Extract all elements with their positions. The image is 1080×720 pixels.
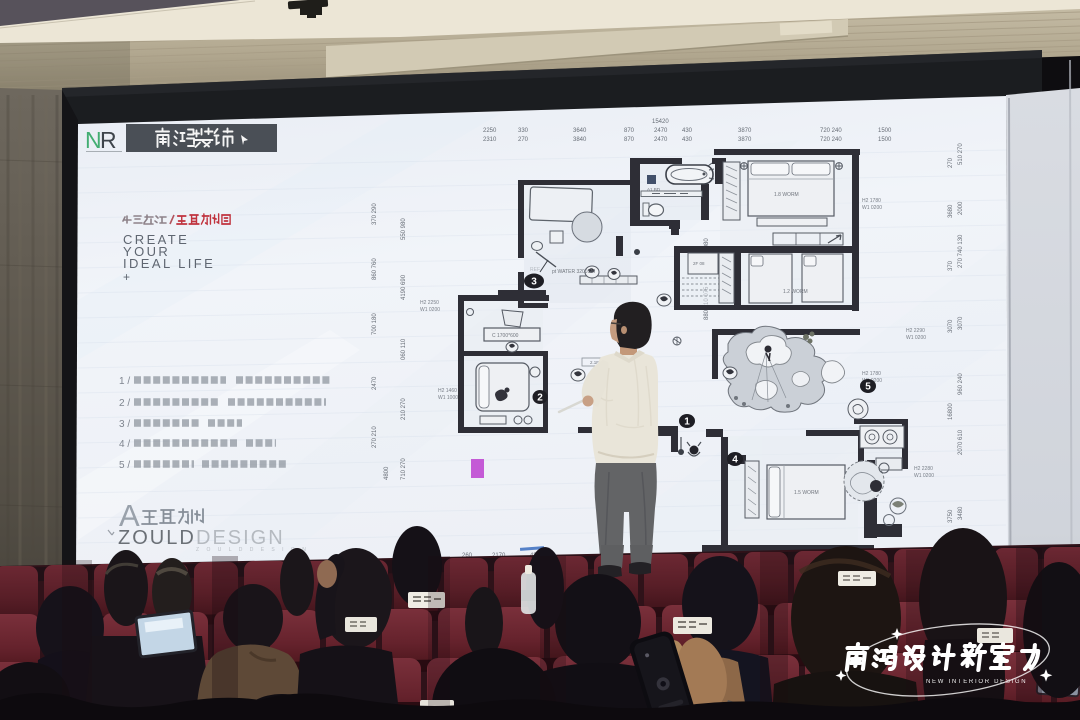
svg-text:3640: 3640 bbox=[573, 128, 587, 134]
svg-text:270: 270 bbox=[518, 137, 529, 143]
svg-text:060 110: 060 110 bbox=[401, 338, 407, 360]
svg-text:1.8 WORM: 1.8 WORM bbox=[774, 192, 799, 198]
svg-text:W1 1000: W1 1000 bbox=[438, 395, 458, 401]
svg-text:370 290: 370 290 bbox=[372, 203, 378, 225]
svg-text:IDEAL LIFE: IDEAL LIFE bbox=[123, 256, 215, 271]
svg-text:H2 1780: H2 1780 bbox=[862, 198, 881, 204]
svg-text:3870: 3870 bbox=[738, 128, 752, 134]
svg-text:2310: 2310 bbox=[483, 137, 497, 143]
svg-text:DESIGN: DESIGN bbox=[196, 527, 285, 549]
svg-text:1500: 1500 bbox=[878, 137, 892, 143]
svg-text:H2 2290: H2 2290 bbox=[906, 328, 925, 334]
svg-text:2250: 2250 bbox=[483, 128, 497, 134]
svg-text:2470: 2470 bbox=[654, 128, 668, 134]
svg-text:2470: 2470 bbox=[654, 137, 668, 143]
svg-text:ZOULD: ZOULD bbox=[118, 527, 196, 549]
svg-text:C 1700*600: C 1700*600 bbox=[492, 333, 519, 339]
svg-text:4: 4 bbox=[732, 455, 738, 466]
svg-text:960 240: 960 240 bbox=[958, 373, 964, 395]
svg-text:W1 0200: W1 0200 bbox=[914, 473, 934, 479]
svg-text:1 /: 1 / bbox=[119, 376, 130, 387]
svg-text:16800: 16800 bbox=[948, 403, 954, 420]
svg-text:1.5 WORM: 1.5 WORM bbox=[794, 490, 819, 496]
svg-text:2470: 2470 bbox=[372, 376, 378, 390]
svg-text:5 /: 5 / bbox=[119, 460, 130, 471]
svg-text:W1 0200: W1 0200 bbox=[862, 205, 882, 211]
svg-text:H2 1460: H2 1460 bbox=[438, 388, 457, 394]
svg-text:W1 0200: W1 0200 bbox=[906, 335, 926, 341]
svg-text:4 /: 4 / bbox=[119, 439, 130, 450]
svg-text:2: 2 bbox=[537, 393, 543, 404]
svg-text:430: 430 bbox=[682, 128, 693, 134]
svg-text:370: 370 bbox=[948, 260, 954, 271]
svg-text:550 980: 550 980 bbox=[401, 218, 407, 240]
svg-text:pt WATER 3200SM: pt WATER 3200SM bbox=[552, 269, 595, 275]
svg-text:15420: 15420 bbox=[652, 119, 669, 125]
svg-text:700 180: 700 180 bbox=[372, 313, 378, 335]
svg-text:1: 1 bbox=[684, 417, 690, 428]
svg-text:+: + bbox=[123, 270, 130, 284]
svg-text:3070: 3070 bbox=[948, 319, 954, 333]
svg-text:3: 3 bbox=[531, 277, 537, 288]
svg-text:270: 270 bbox=[948, 157, 954, 168]
svg-text:210 270: 210 270 bbox=[401, 398, 407, 420]
svg-text:4800: 4800 bbox=[384, 466, 390, 480]
svg-text:2 /: 2 / bbox=[119, 398, 130, 409]
svg-text:3840: 3840 bbox=[573, 137, 587, 143]
svg-text:W1 0200: W1 0200 bbox=[420, 307, 440, 313]
svg-text:2F 08: 2F 08 bbox=[693, 261, 705, 266]
svg-text:4190 690: 4190 690 bbox=[401, 274, 407, 300]
svg-text:270 740 130: 270 740 130 bbox=[958, 234, 964, 268]
svg-text:870: 870 bbox=[624, 128, 635, 134]
svg-text:3680: 3680 bbox=[948, 204, 954, 218]
svg-text:3480: 3480 bbox=[958, 506, 964, 520]
svg-text:NEW INTERIOR DESIGN: NEW INTERIOR DESIGN bbox=[926, 679, 1027, 685]
svg-text:H2 1780: H2 1780 bbox=[862, 371, 881, 377]
svg-text:860 760: 860 760 bbox=[372, 258, 378, 280]
svg-text:3 /: 3 / bbox=[119, 419, 130, 430]
svg-text:870: 870 bbox=[624, 137, 635, 143]
svg-text:H2 2250: H2 2250 bbox=[420, 300, 439, 306]
svg-text:270 210: 270 210 bbox=[372, 426, 378, 448]
svg-text:510 270: 510 270 bbox=[958, 143, 964, 165]
svg-text:710 270: 710 270 bbox=[401, 458, 407, 480]
svg-text:430: 430 bbox=[682, 137, 693, 143]
svg-text:1500: 1500 bbox=[878, 128, 892, 134]
svg-text:R: R bbox=[100, 127, 117, 153]
svg-text:2000: 2000 bbox=[958, 201, 964, 215]
svg-text:3750: 3750 bbox=[948, 509, 954, 523]
svg-text:3870: 3870 bbox=[738, 137, 752, 143]
svg-text:720 240: 720 240 bbox=[820, 128, 842, 134]
svg-text:720 240: 720 240 bbox=[820, 137, 842, 143]
svg-text:330: 330 bbox=[518, 128, 529, 134]
svg-text:3070: 3070 bbox=[958, 316, 964, 330]
svg-text:2070 610: 2070 610 bbox=[958, 429, 964, 455]
svg-text:H2 2280: H2 2280 bbox=[914, 466, 933, 472]
svg-text:5: 5 bbox=[865, 382, 871, 393]
svg-text:1.2 WORM: 1.2 WORM bbox=[783, 289, 808, 295]
